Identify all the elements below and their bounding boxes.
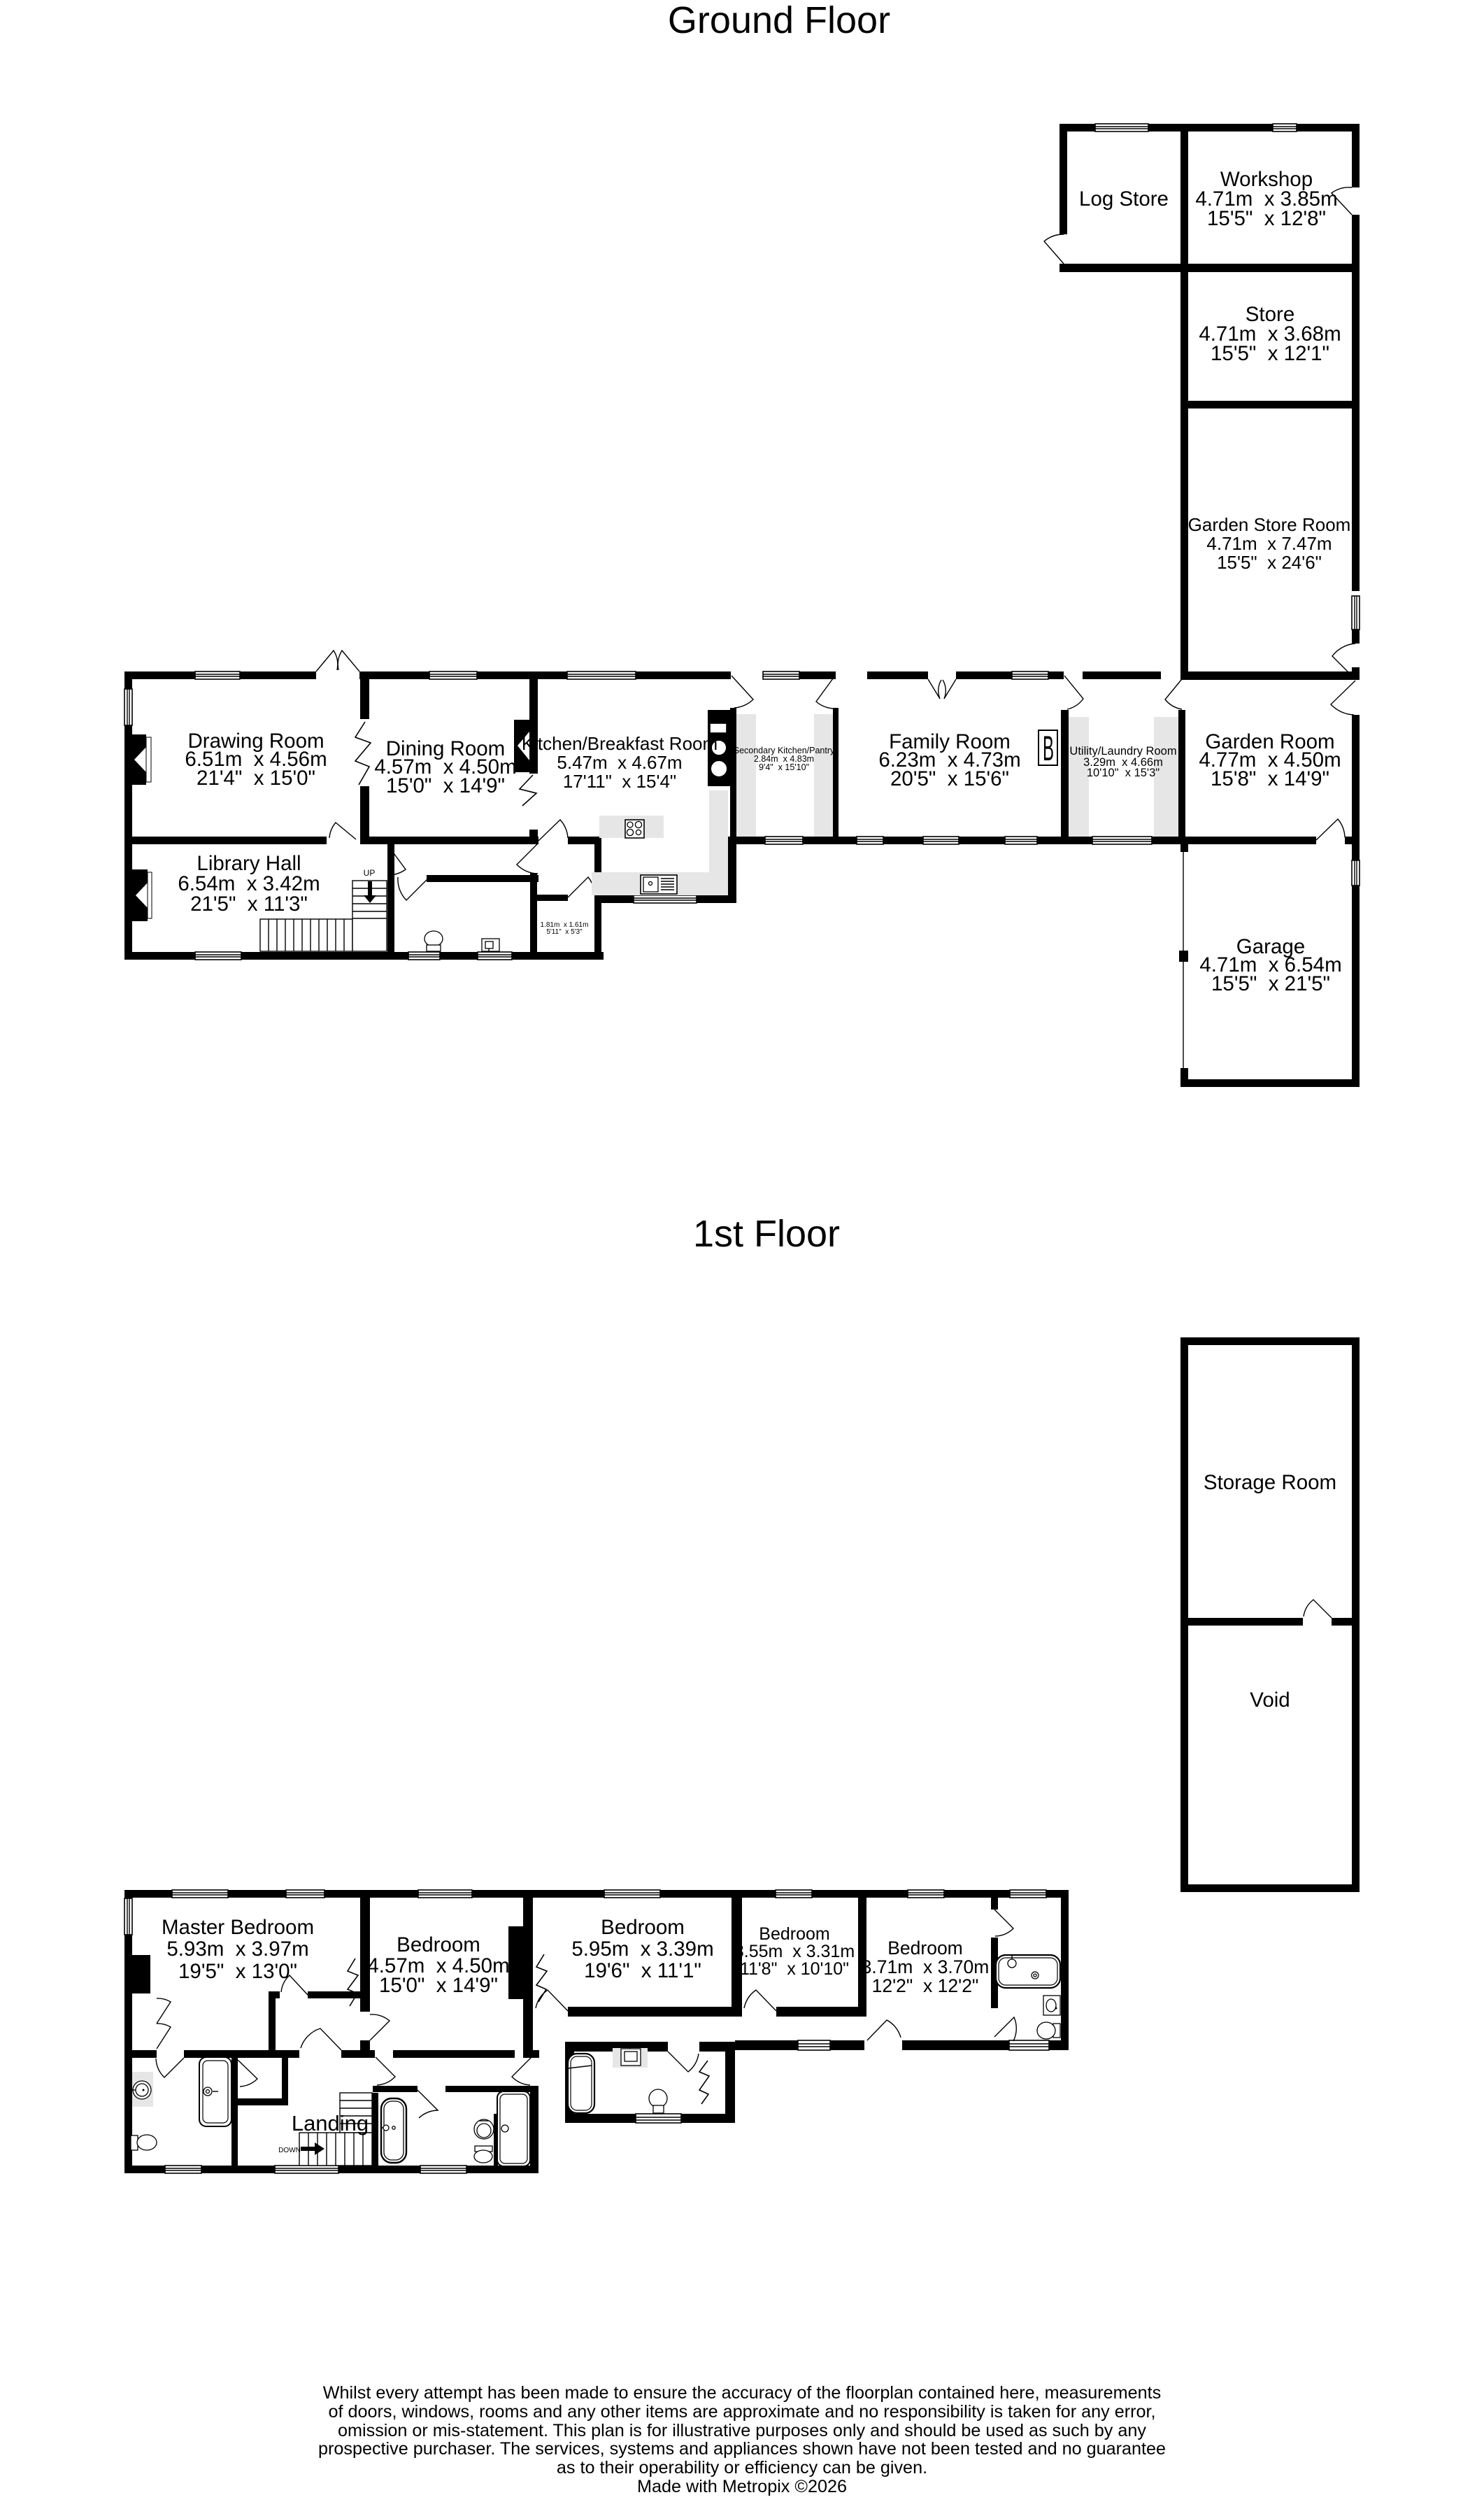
- svg-text:15'0" x 14'9": 15'0" x 14'9": [386, 774, 505, 797]
- svg-text:21'4" x 15'0": 21'4" x 15'0": [197, 767, 315, 790]
- svg-text:Kitchen/Breakfast Room: Kitchen/Breakfast Room: [522, 733, 718, 754]
- svg-text:12'2" x 12'2": 12'2" x 12'2": [872, 1975, 979, 1996]
- svg-text:Bedroom: Bedroom: [887, 1938, 963, 1959]
- svg-text:of doors, windows, rooms and a: of doors, windows, rooms and any other i…: [328, 2402, 1155, 2422]
- svg-text:4.71m x 7.47m: 4.71m x 7.47m: [1206, 533, 1332, 554]
- svg-text:DOWN: DOWN: [278, 2147, 301, 2154]
- svg-text:19'5" x 13'0": 19'5" x 13'0": [178, 1960, 297, 1983]
- svg-text:omission or mis-statement. Thi: omission or mis-statement. This plan is …: [338, 2421, 1146, 2440]
- svg-text:21'5" x 11'3": 21'5" x 11'3": [190, 893, 308, 916]
- svg-text:as to their operability or eff: as to their operability or efficiency ca…: [557, 2458, 927, 2478]
- svg-text:3.55m x 3.31m: 3.55m x 3.31m: [734, 1942, 855, 1961]
- svg-text:Void: Void: [1250, 1689, 1290, 1712]
- svg-text:11'8" x 10'10": 11'8" x 10'10": [740, 1959, 849, 1979]
- svg-text:15'5" x 21'5": 15'5" x 21'5": [1211, 972, 1330, 995]
- svg-text:9'4" x 15'10": 9'4" x 15'10": [759, 762, 809, 772]
- svg-text:1st Floor: 1st Floor: [693, 1213, 840, 1255]
- svg-text:Master Bedroom: Master Bedroom: [162, 1916, 314, 1939]
- svg-text:5.47m x 4.67m: 5.47m x 4.67m: [557, 752, 682, 773]
- svg-text:15'8" x 14'9": 15'8" x 14'9": [1211, 767, 1329, 790]
- svg-text:UP: UP: [364, 868, 376, 878]
- svg-text:Landing: Landing: [292, 2111, 369, 2135]
- svg-text:15'5" x 24'6": 15'5" x 24'6": [1217, 552, 1322, 573]
- svg-text:Bedroom: Bedroom: [397, 1933, 480, 1956]
- svg-text:5'11" x 5'3": 5'11" x 5'3": [546, 928, 583, 936]
- svg-text:Whilst every attempt has been: Whilst every attempt has been made to en…: [323, 2383, 1161, 2403]
- svg-text:15'0" x 14'9": 15'0" x 14'9": [379, 1974, 498, 1997]
- svg-text:19'6" x 11'1": 19'6" x 11'1": [584, 1959, 701, 1982]
- svg-text:20'5" x 15'6": 20'5" x 15'6": [890, 767, 1009, 790]
- svg-text:15'5" x 12'8": 15'5" x 12'8": [1207, 207, 1326, 230]
- svg-text:prospective purchaser. The ser: prospective purchaser. The services, sys…: [318, 2439, 1166, 2459]
- svg-text:10'10" x 15'3": 10'10" x 15'3": [1087, 767, 1160, 779]
- svg-text:Storage Room: Storage Room: [1204, 1471, 1336, 1494]
- svg-text:Log Store: Log Store: [1079, 187, 1169, 211]
- svg-text:Made with Metropix ©2026: Made with Metropix ©2026: [637, 2477, 847, 2496]
- svg-text:Garden Store Room: Garden Store Room: [1188, 514, 1351, 535]
- svg-text:15'5" x 12'1": 15'5" x 12'1": [1211, 342, 1329, 365]
- svg-text:B: B: [1043, 730, 1054, 769]
- svg-text:Ground Floor: Ground Floor: [668, 0, 890, 41]
- svg-text:5.95m x 3.39m: 5.95m x 3.39m: [571, 1938, 713, 1961]
- svg-text:Bedroom: Bedroom: [759, 1924, 829, 1944]
- svg-text:Bedroom: Bedroom: [601, 1916, 685, 1939]
- svg-text:5.93m x 3.97m: 5.93m x 3.97m: [166, 1938, 308, 1961]
- svg-text:17'11" x 15'4": 17'11" x 15'4": [563, 771, 676, 792]
- svg-text:3.71m x 3.70m: 3.71m x 3.70m: [862, 1956, 990, 1977]
